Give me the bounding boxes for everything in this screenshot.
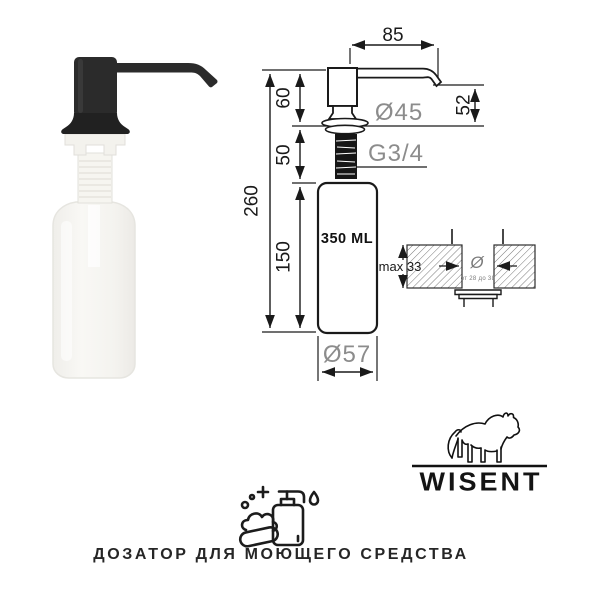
hole-diameter-symbol: Ø [469,253,485,272]
locknut-profile [455,290,501,307]
outline-spout [357,69,441,86]
outline-bottle [318,183,377,333]
label-thread-size: G3/4 [368,140,424,167]
outline-neck [329,106,356,119]
mounting-diagram: Ø от 28 до 38 max 33 [379,229,535,307]
caption: ДОЗАТОР ДЛЯ МОЮЩЕГО СРЕДСТВА [0,546,562,564]
dim-60: 60 [274,87,295,108]
bison-icon [448,413,519,462]
icon-sparkle [258,487,268,497]
outline-flange-bottom [326,125,365,133]
icon-pump-arm [279,492,304,503]
label-flange-diameter: Ø45 [375,99,423,126]
dim-50: 50 [274,144,295,165]
brand-logo [406,403,556,469]
droplet-icon [310,492,318,505]
dim-150: 150 [274,241,295,273]
outline-pump-head [328,68,357,106]
brand-name: WISENT [406,468,556,497]
label-max-thickness: max 33 [379,259,422,274]
dim-52: 52 [454,94,475,115]
label-bottle-diameter: Ø57 [323,341,371,368]
hole-diameter-range: от 28 до 38 [461,276,496,282]
label-volume: 350 ML [321,231,373,247]
dim-85: 85 [382,25,403,46]
soap-dispenser-icon [236,484,328,548]
icon-bubble-small [250,495,254,499]
dim-260: 260 [242,185,263,217]
icon-bubble-large [242,502,248,508]
